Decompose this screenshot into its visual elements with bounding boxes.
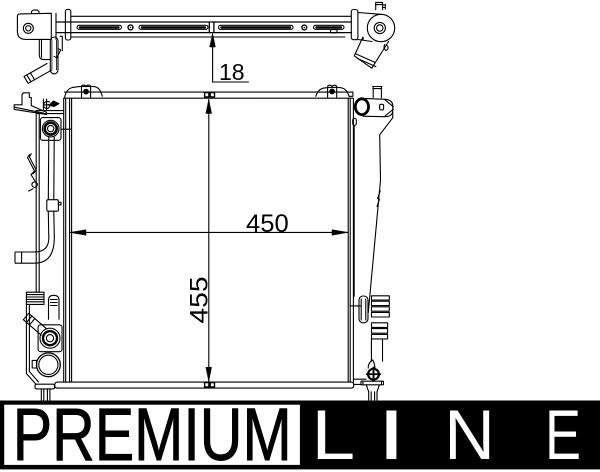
svg-text:I: I xyxy=(377,395,407,472)
svg-text:E: E xyxy=(545,395,581,472)
svg-text:450: 450 xyxy=(246,210,289,238)
svg-text:455: 455 xyxy=(185,277,213,324)
svg-text:N: N xyxy=(444,395,495,472)
svg-text:PREMIUM: PREMIUM xyxy=(13,393,292,472)
svg-text:L: L xyxy=(311,395,355,472)
svg-text:18: 18 xyxy=(219,59,245,85)
